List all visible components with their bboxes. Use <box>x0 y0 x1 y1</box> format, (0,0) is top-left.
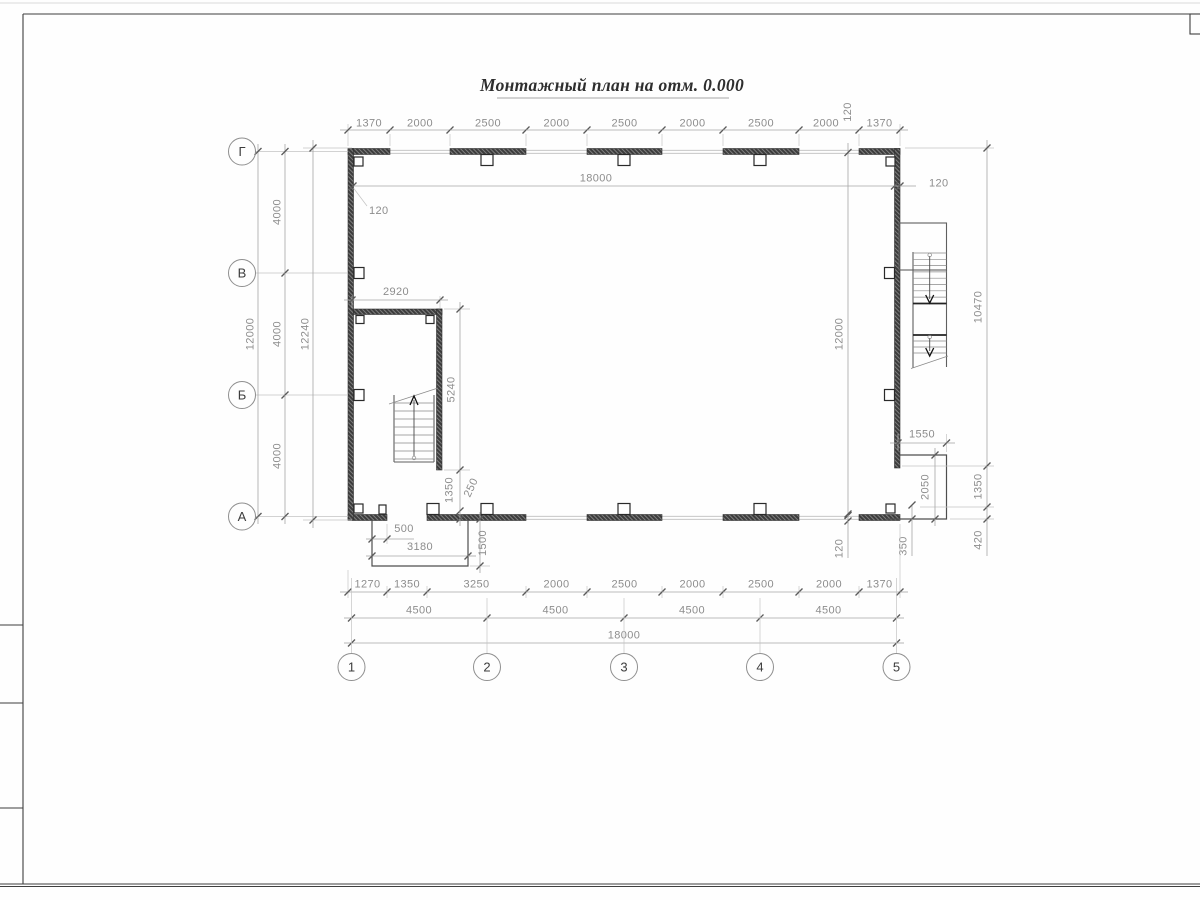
dim-label: 2000 <box>813 118 839 130</box>
sheet-frame <box>0 3 1200 887</box>
dim-label: 2500 <box>748 118 774 130</box>
dim-label: 2000 <box>543 118 569 130</box>
window-lines-bottom <box>526 516 859 519</box>
dim-label: 10470 <box>973 291 985 324</box>
axis-bubbles-bottom: 1 2 3 4 5 <box>338 578 910 681</box>
dim-label: 1370 <box>866 118 892 130</box>
dim-label: 2000 <box>816 579 842 591</box>
stair-partition-walls <box>354 309 443 470</box>
dim-label: 12000 <box>245 318 257 351</box>
dim-chains-left: 12000 4000 4000 4000 12240 <box>245 140 353 528</box>
dim-label: 4000 <box>272 199 284 225</box>
dim-label: 2000 <box>679 579 705 591</box>
dim-label: 250 <box>462 476 481 499</box>
dim-label: 420 <box>973 530 985 550</box>
dim-label: 4500 <box>815 605 841 617</box>
dim-label: 4500 <box>406 605 432 617</box>
axis-label: Б <box>238 388 247 403</box>
drawing-title: Монтажный план на отм. 0.000 <box>479 75 744 98</box>
dim-label: 500 <box>394 523 414 535</box>
dim-chain-right: 10470 1350 420 <box>902 140 994 556</box>
dim-label: 5240 <box>446 376 458 402</box>
exterior-walls <box>348 149 900 521</box>
dim-inner-width: 18000 120 120 <box>353 173 949 218</box>
dim-label: 2500 <box>611 118 637 130</box>
dim-label: 4500 <box>542 605 568 617</box>
title-text: Монтажный план на отм. 0.000 <box>479 75 744 95</box>
dim-porch-left: 500 3180 1500 <box>366 512 490 573</box>
dim-label: 3250 <box>463 579 489 591</box>
dim-label: 120 <box>834 539 846 559</box>
columns <box>354 155 895 515</box>
dim-label: 1550 <box>909 429 935 441</box>
dim-label: 120 <box>929 178 949 190</box>
stair-right <box>899 223 948 369</box>
axis-label: 5 <box>893 660 900 675</box>
wall-thickness-note: 120 <box>369 205 389 217</box>
dim-label: 12240 <box>300 318 312 351</box>
dim-inner-height: 12000 <box>834 143 849 524</box>
dim-label: 18000 <box>580 173 613 185</box>
dim-label: 1270 <box>354 579 380 591</box>
axis-label: 2 <box>483 660 490 675</box>
axis-label: Г <box>238 144 245 159</box>
dim-label: 4500 <box>679 605 705 617</box>
dim-label: 2500 <box>475 118 501 130</box>
dim-label: 3180 <box>407 541 433 553</box>
dim-label: 2920 <box>383 286 409 298</box>
dim-label: 2000 <box>679 118 705 130</box>
dim-label: 2000 <box>407 118 433 130</box>
floor-plan-svg: Монтажный план на отм. 0.000 <box>0 0 1200 900</box>
dim-label: 350 <box>898 536 910 556</box>
dim-label: 1350 <box>444 477 456 503</box>
dim-label: 4000 <box>272 321 284 347</box>
dim-label: 120 <box>842 102 854 122</box>
dim-label: 1370 <box>356 118 382 130</box>
axis-label: В <box>238 266 247 281</box>
dim-label: 2050 <box>920 474 932 500</box>
axis-label: А <box>238 509 247 524</box>
axis-label: 1 <box>348 660 355 675</box>
stair-left <box>389 388 438 462</box>
dim-label: 12000 <box>834 318 846 351</box>
dim-label: 2500 <box>611 579 637 591</box>
dim-label: 2000 <box>543 579 569 591</box>
dim-label: 2500 <box>748 579 774 591</box>
dim-label: 1500 <box>477 530 489 556</box>
axis-label: 3 <box>620 660 627 675</box>
dim-chain-top: 1370 2000 2500 2000 2500 2000 2500 2000 … <box>340 102 908 146</box>
axis-label: 4 <box>756 660 763 675</box>
dim-label: 1350 <box>973 473 985 499</box>
drawing-sheet: Монтажный план на отм. 0.000 <box>0 0 1200 900</box>
dim-label: 1370 <box>866 579 892 591</box>
dim-label: 4000 <box>272 443 284 469</box>
dim-label: 1350 <box>394 579 420 591</box>
